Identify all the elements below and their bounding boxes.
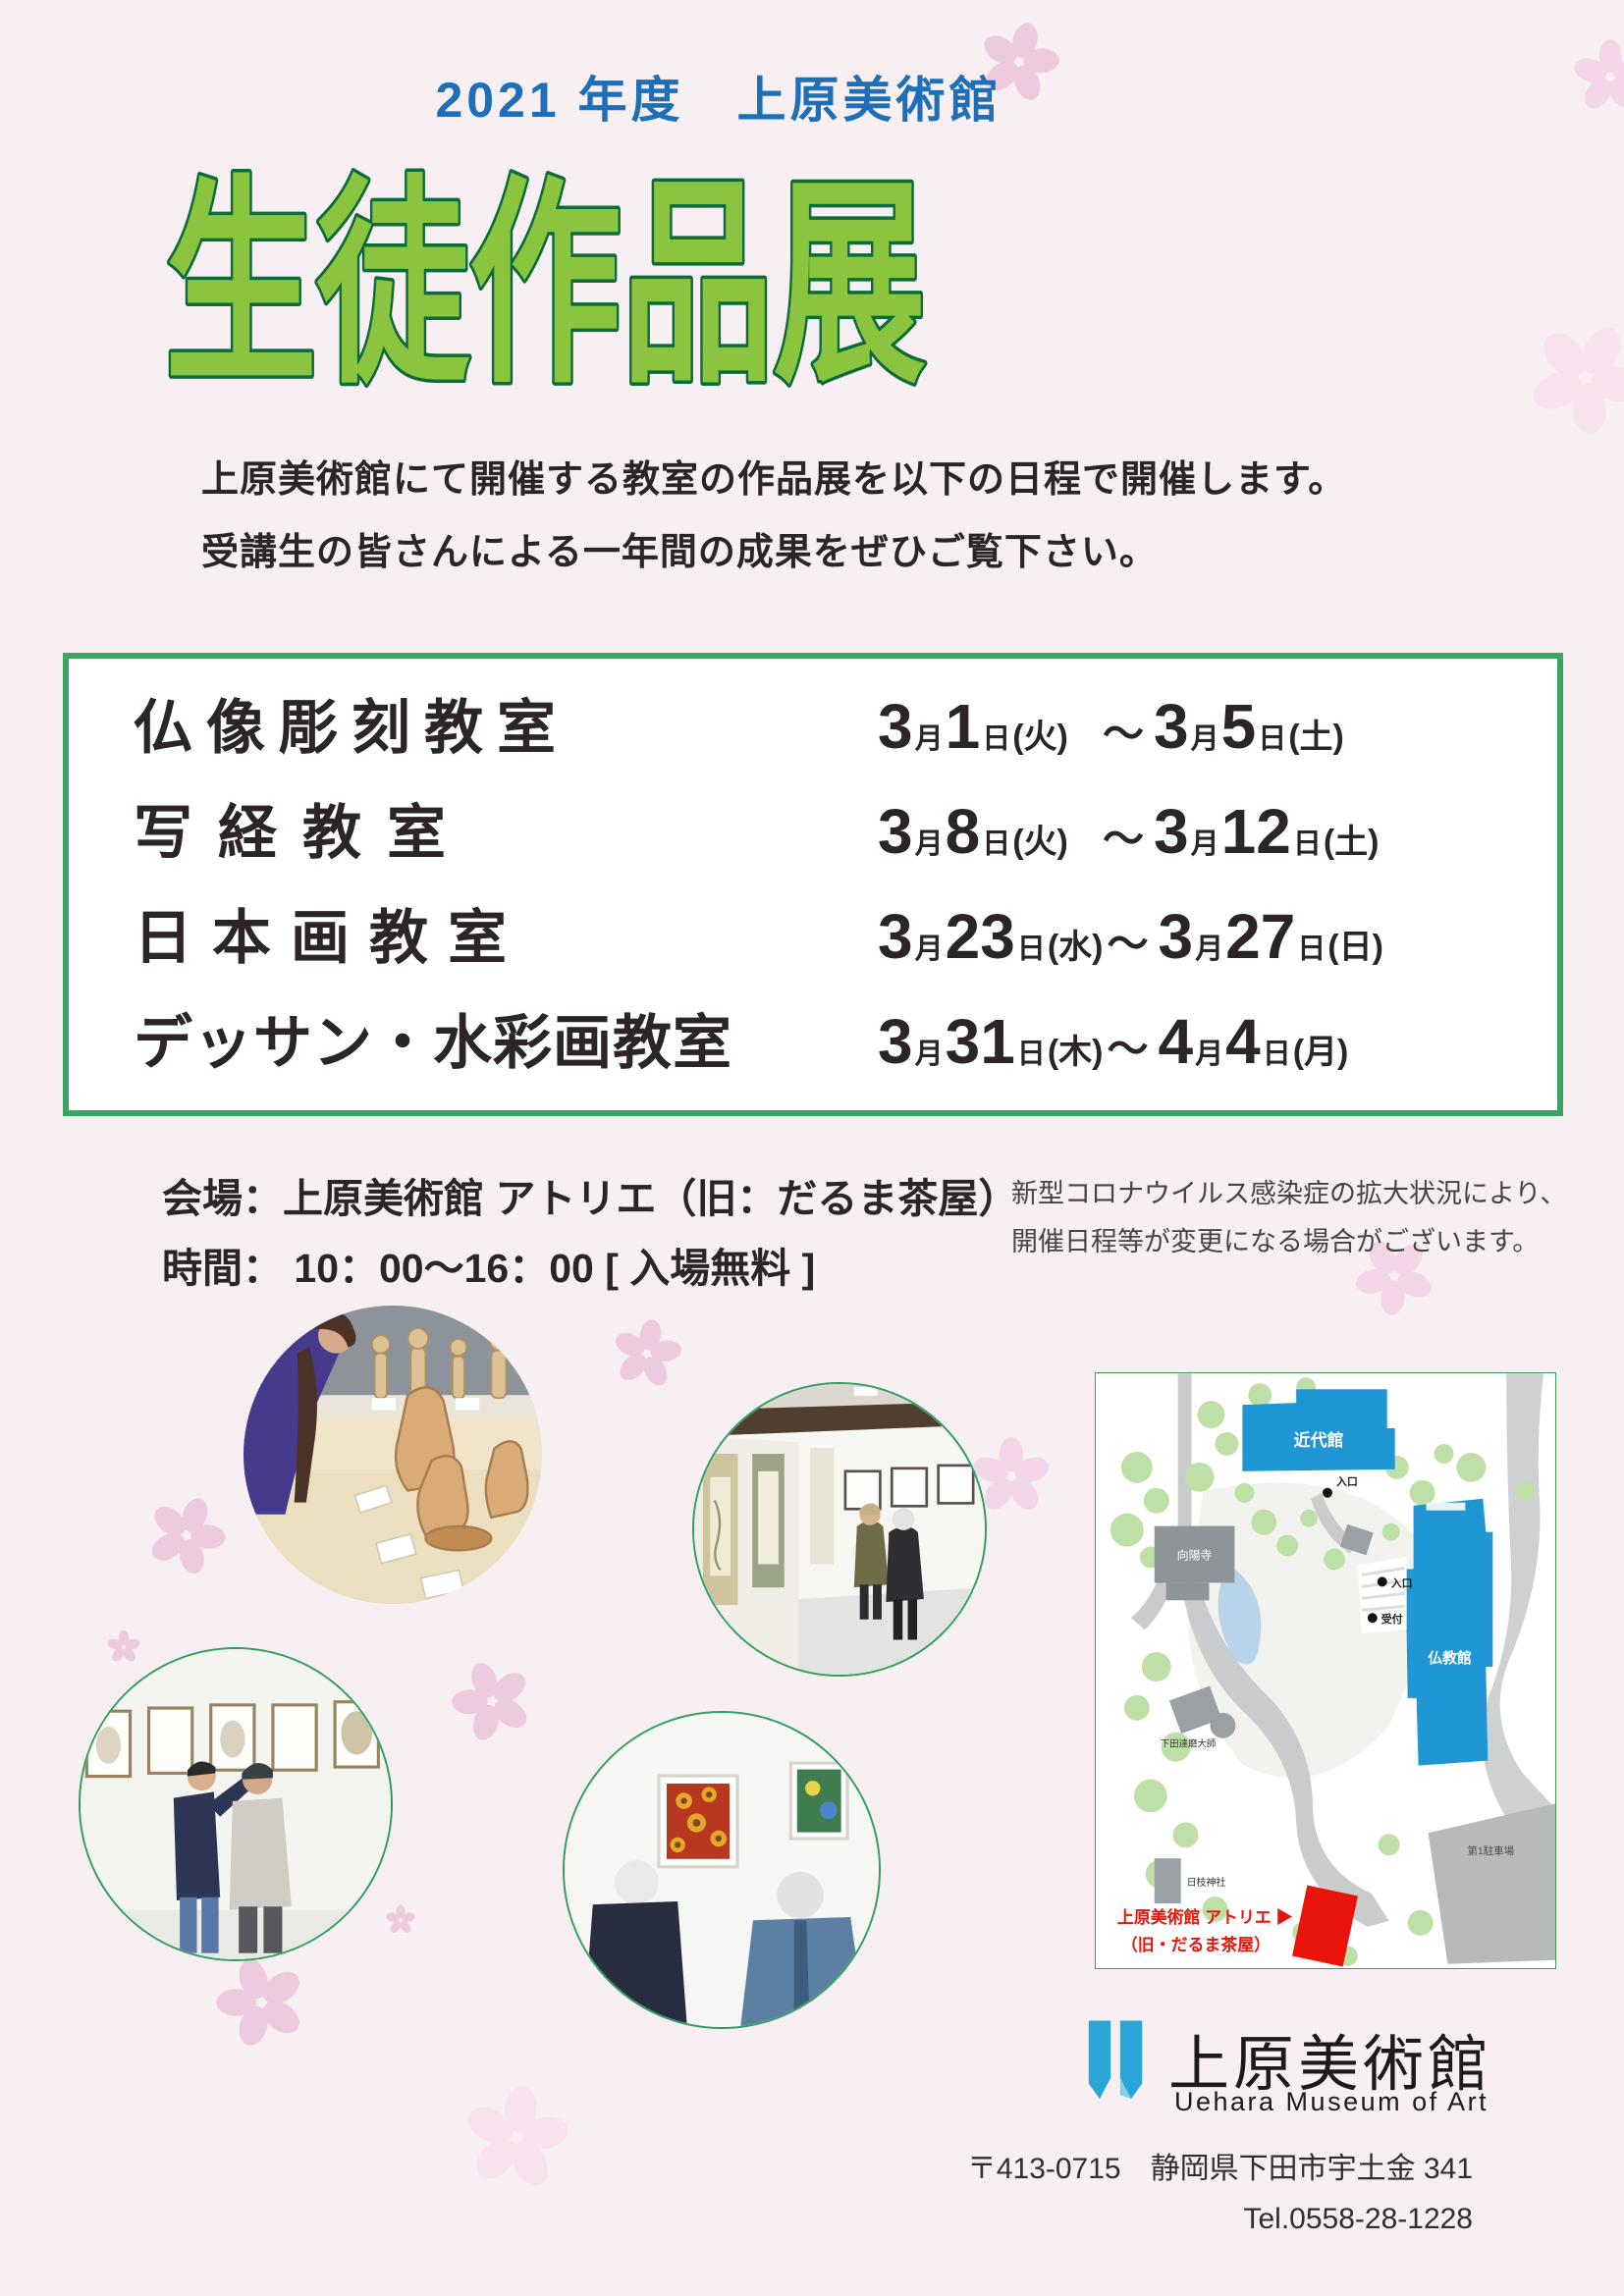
photo-scroll-gallery (692, 1382, 987, 1677)
sakura-flower-icon (385, 1904, 416, 1936)
end-date: 3月5日(土) (1154, 735, 1344, 752)
exhibition-title: 生徒作品展 (165, 161, 926, 408)
sakura-flower-icon (214, 1955, 308, 2050)
start-date: 3月23日(水) (878, 884, 1103, 1006)
covid-notice: 新型コロナウイルス感染症の拡大状況により、 開催日程等が変更になる場合がございま… (1011, 1170, 1566, 1266)
tilde-separator: ～ (1107, 1026, 1148, 1072)
venue-line: 会場：上原美術館 アトリエ（旧：だるま茶屋） (162, 1164, 1018, 1234)
postal-address: 〒413-0715 静岡県下田市宇土金 341 (967, 2144, 1473, 2194)
footer-address-block: 〒413-0715 静岡県下田市宇土金 341 Tel.0558-28-1228 (967, 2144, 1473, 2244)
start-date: 3月31日(木) (878, 989, 1103, 1111)
schedule-row: デッサン・水彩画教室3月31日(木)～4月4日(月) (134, 989, 1557, 1095)
sakura-flower-icon (461, 2083, 571, 2193)
time-line: 時間： 10：00～16：00 [ 入場無料 ] (162, 1234, 1018, 1304)
covid-notice-line-1: 新型コロナウイルス感染症の拡大状況により、 (1011, 1170, 1566, 1218)
map-label-hie-jinja: 日枝神社 (1187, 1876, 1226, 1889)
map-label-entrance-1: 入口 (1336, 1475, 1358, 1488)
schedule-row: 仏像彫刻教室3月1日(火)～3月5日(土) (134, 674, 1557, 779)
sakura-flower-icon (611, 1317, 683, 1390)
end-date: 3月27日(日) (1158, 945, 1382, 962)
sakura-flower-icon (145, 1494, 228, 1576)
photo-sculpture-class-exhibit (244, 1306, 542, 1604)
tilde-separator: ～ (1103, 816, 1144, 862)
museum-name-en: Uehara Museum of Art (1174, 2087, 1489, 2117)
end-date: 3月12日(土) (1154, 840, 1379, 857)
map-label-kindaikan: 近代館 (1294, 1430, 1344, 1450)
map-label-reception: 受付 (1381, 1612, 1403, 1626)
class-name: 写経教室 (134, 780, 878, 885)
map-building-bukkyokan: 仏教館 (1406, 1499, 1493, 1766)
sculpture-photo-art (244, 1306, 542, 1604)
covid-notice-line-2: 開催日程等が変更になる場合がございます。 (1011, 1218, 1566, 1266)
tilde-separator: ～ (1103, 711, 1144, 757)
tilde-separator: ～ (1107, 921, 1148, 967)
end-date: 4月4日(月) (1158, 1050, 1348, 1067)
painting-gallery-photo-art (565, 1713, 879, 2027)
photo-painting-class-exhibit (563, 1711, 881, 2029)
map-label-bukkyokan: 仏教館 (1428, 1649, 1472, 1667)
sakura-flower-icon (450, 1659, 534, 1743)
intro-line-1: 上原美術館にて開催する教室の作品展を以下の日程で開催します。 (201, 444, 1346, 516)
map-label-daruma: 下田達磨大師 (1161, 1738, 1217, 1750)
uehara-museum-logo-icon (1082, 2020, 1149, 2120)
intro-text: 上原美術館にて開催する教室の作品展を以下の日程で開催します。 受講生の皆さんによ… (201, 444, 1346, 589)
map-label-atelier-2: （旧・だるま茶屋） (1121, 1935, 1271, 1954)
map-label-parking: 第1駐車場 (1467, 1844, 1514, 1857)
phone-number: Tel.0558-28-1228 (967, 2194, 1473, 2244)
class-name: 日本画教室 (134, 885, 878, 990)
map-label-entrance-2: 入口 (1391, 1576, 1413, 1589)
drawing-gallery-photo-art (81, 1649, 391, 1959)
museum-map-art: 近代館 入口 仏教館 入口 受付 向陽寺 下田達磨大師 日枝神社 (1096, 1373, 1555, 1968)
venue-info: 会場：上原美術館 アトリエ（旧：だるま茶屋） 時間： 10：00～16：00 [… (162, 1164, 1018, 1304)
scroll-gallery-photo-art (694, 1384, 985, 1675)
schedule-row: 写経教室3月8日(火)～3月12日(土) (134, 779, 1557, 884)
start-date: 3月8日(火) (878, 779, 1099, 901)
sakura-flower-icon (106, 1629, 141, 1665)
exhibition-title-art: 生徒作品展 (0, 0, 1624, 422)
class-name: デッサン・水彩画教室 (134, 990, 878, 1095)
class-name: 仏像彫刻教室 (134, 675, 878, 780)
museum-map: 近代館 入口 仏教館 入口 受付 向陽寺 下田達磨大師 日枝神社 (1095, 1372, 1556, 1969)
map-label-koyoji: 向陽寺 (1177, 1547, 1213, 1562)
schedule-row: 日本画教室3月23日(水)～3月27日(日) (134, 884, 1557, 989)
map-label-atelier-1: 上原美術館 アトリエ ▶ (1117, 1907, 1293, 1927)
photo-drawing-class-exhibit (79, 1647, 393, 1961)
schedule-box: 仏像彫刻教室3月1日(火)～3月5日(土) 写経教室3月8日(火)～3月12日(… (63, 653, 1563, 1116)
intro-line-2: 受講生の皆さんによる一年間の成果をぜひご覧下さい。 (201, 516, 1346, 589)
start-date: 3月1日(火) (878, 674, 1099, 796)
poster-page: { "colors": { "background": "#f8eff3", "… (0, 0, 1624, 2296)
